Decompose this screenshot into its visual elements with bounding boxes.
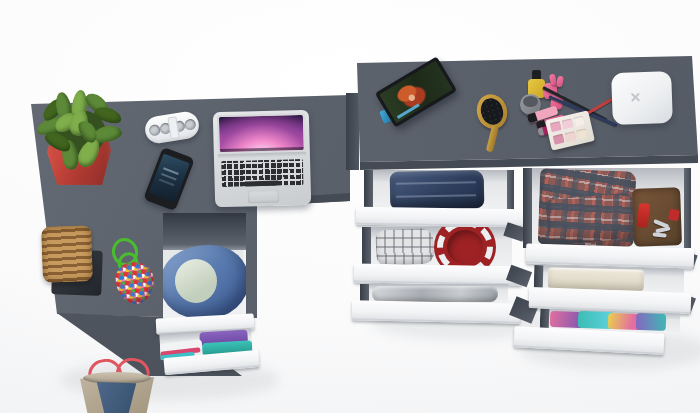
eyeshadow-pan [562, 118, 574, 129]
tie-dye-shirt [636, 313, 667, 331]
red-badge [668, 209, 680, 222]
drawer-rail [523, 168, 532, 248]
brush-pad [478, 95, 507, 127]
tablet [378, 56, 454, 128]
laptop-trackpad [248, 190, 279, 204]
eyeshadow-pan [550, 121, 562, 132]
key [652, 232, 666, 237]
bag-rim [83, 372, 151, 384]
wicker-basket [41, 225, 93, 283]
drawer-rail [507, 170, 514, 210]
drawer-front[interactable] [354, 264, 522, 286]
speaker-grille [184, 118, 197, 131]
drawer-front[interactable] [356, 207, 524, 227]
dresser-side-panel [346, 93, 359, 170]
eyeshadow-pan [564, 131, 576, 142]
red-round-plate [434, 227, 496, 266]
tablet-screen [379, 60, 453, 123]
speaker-hinge [167, 116, 179, 139]
dresser-drawer-left-1[interactable] [364, 170, 514, 210]
mini-lipstick [556, 76, 564, 88]
silver-garment [372, 286, 498, 302]
denim-tote-bag [78, 357, 156, 413]
eyeshadow-pan [553, 133, 565, 144]
drawer-front[interactable] [352, 300, 520, 324]
eyeshadow-pan [573, 116, 585, 127]
drawer-rail [540, 309, 550, 329]
tartan-shirt-fold [545, 192, 637, 245]
drawer-rail [364, 170, 373, 210]
laptop-display [217, 113, 306, 154]
drawer-rail [362, 227, 371, 266]
white-hub-box [611, 71, 673, 125]
dresser-drawer-right-1[interactable] [523, 168, 691, 248]
swiss-knife [637, 203, 650, 228]
eyeshadow-pan [576, 128, 588, 139]
scene-render [0, 0, 700, 413]
brush-handle [486, 125, 499, 153]
gray-plaid-shirt [375, 228, 435, 266]
potted-plant [36, 92, 122, 172]
laptop [213, 110, 311, 207]
laptop-wallpaper [219, 115, 304, 152]
left-unit-open-drawer[interactable] [163, 213, 246, 318]
folded-jeans [390, 170, 485, 210]
hairbrush [475, 92, 511, 154]
hoodie-opening [175, 259, 217, 303]
dresser-drawer-left-2[interactable] [362, 227, 512, 266]
speaker-grille [148, 124, 161, 137]
drawer-rail [684, 168, 691, 248]
laptop-spacebar [245, 181, 279, 187]
leather-wallet [632, 187, 682, 247]
